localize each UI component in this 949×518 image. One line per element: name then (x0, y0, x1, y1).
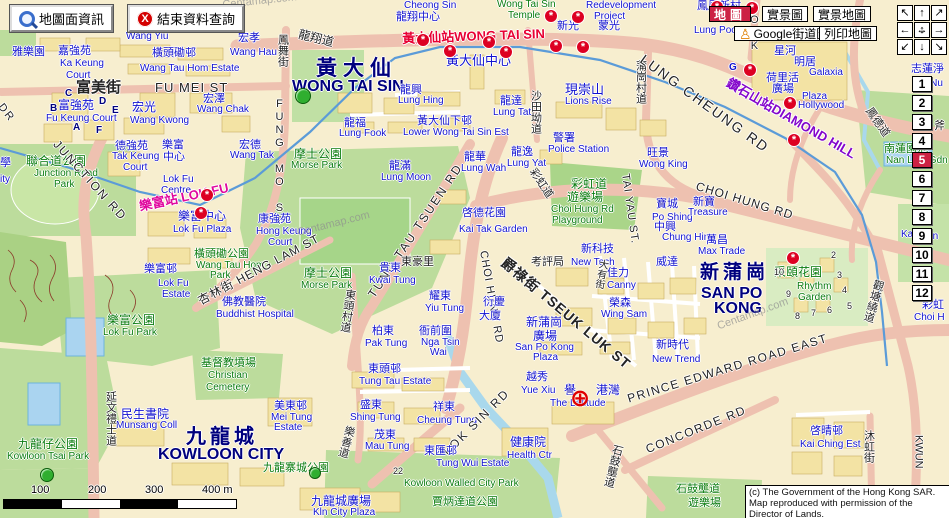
map-label: 2 (831, 251, 836, 260)
map-label: 祥東 (433, 402, 455, 413)
map-label: Lung Tat (493, 108, 531, 118)
map-label: 3 (837, 271, 842, 280)
scale-tick-label: 100 (31, 484, 49, 496)
magnifier-icon (19, 11, 35, 27)
map-label: Estate (162, 290, 190, 300)
pan-↗-button[interactable]: ↗ (931, 5, 947, 21)
map-label: 龍翔中心 (396, 12, 440, 23)
pegman-icon: ♙ (739, 28, 752, 40)
zoom-level-9-button[interactable]: 9 (912, 228, 932, 244)
map-label: Shing Tung (350, 413, 401, 423)
center-pan-icon: ↕ (915, 23, 929, 36)
map-label: 衍慶 (483, 297, 505, 308)
mtr-station-icon: * (195, 207, 207, 219)
map-label: 彩虹道 (571, 178, 607, 190)
map-label: 新蒲崗 (700, 263, 769, 283)
mtr-station-icon: * (201, 189, 213, 201)
map-label: 旺景 (647, 148, 669, 159)
map-label: 廣場 (772, 84, 794, 95)
mtr-station-icon: * (444, 45, 456, 57)
map-label: 橫頭磡公園 (194, 249, 249, 260)
map-label: Tung Wui Estate (436, 459, 509, 469)
zoom-level-5-button[interactable]: 5 (912, 152, 932, 168)
map-label: Wang Tau Hom Estate (140, 64, 240, 74)
map-label: KWUN (912, 435, 923, 469)
print-map-button[interactable]: 列印地圖 (819, 26, 877, 41)
map-label: 龍逸 (511, 147, 533, 158)
map-label: Yiu Tung (425, 304, 464, 314)
mtr-station-icon: * (577, 41, 589, 53)
mtr-station-icon: * (744, 64, 756, 76)
map-label: 樂富 (162, 140, 184, 151)
map-label: Wang Chak (197, 105, 249, 115)
pan-↘-button[interactable]: ↘ (931, 39, 947, 55)
map-label: Health Ctr (507, 451, 552, 461)
map-label: 黃大仙下邨 (417, 116, 472, 127)
map-label: 東豪里 (401, 257, 434, 268)
map-label: 龍華 (464, 152, 486, 163)
map-label: Wong King (639, 160, 688, 170)
map-label: Lok Fu Plaza (173, 225, 231, 235)
map-label: Lung Yat (507, 159, 546, 169)
map-label: 遊樂場 (688, 498, 721, 509)
map-label: Kowloon Walled City Park (404, 479, 519, 489)
map-label: G (729, 63, 737, 73)
map-label: 賈炳達道公園 (432, 497, 498, 508)
facility-dot-icon (295, 88, 311, 104)
map-label: 鳳舞街 (276, 34, 287, 67)
zoom-level-1-button[interactable]: 1 (912, 76, 932, 92)
zoom-level-7-button[interactable]: 7 (912, 190, 932, 206)
map-label: 耀東 (429, 291, 451, 302)
map-label: Wong Tai Sin (497, 0, 556, 10)
map-label: 健康院 (510, 436, 546, 448)
map-label: 新時代 (656, 340, 689, 351)
map-label: Buddhist Hospital (216, 310, 294, 320)
map-label: Lung Fook (339, 129, 386, 139)
map-label: 摩士公園 (304, 267, 352, 279)
map-label: Ka Keung (60, 59, 104, 69)
map-label: Lung Wah (461, 164, 506, 174)
map-label: Plaza (533, 353, 558, 363)
map-mode-button[interactable]: 地圖 (709, 6, 751, 22)
mtr-station-icon: * (550, 40, 562, 52)
zoom-level-11-button[interactable]: 11 (912, 266, 932, 282)
map-label: 星河 (774, 46, 796, 57)
map-label: 衙前圍 (419, 326, 452, 337)
map-label: 沐虹街 (862, 430, 873, 463)
map-label: 富美街 (76, 80, 121, 96)
map-info-label: 地圖面資訊 (39, 9, 104, 28)
map-label: Canny (607, 281, 636, 291)
map-label: Garden (798, 293, 831, 303)
map-label: Estate (274, 423, 302, 433)
map-label: Rhythm (797, 282, 831, 292)
map-label: 延文禮士道 (104, 391, 115, 446)
scale-tick-label: 300 (145, 484, 163, 496)
mtr-station-icon: * (572, 11, 584, 23)
map-label: 考評局 (531, 257, 564, 268)
map-label: 東頭邨 (368, 364, 401, 375)
map-label: 寶城 (656, 199, 678, 210)
map-label: Morse Park (291, 161, 342, 171)
pan-↖-button[interactable]: ↖ (897, 5, 913, 21)
map-label: Wang Tak (230, 151, 274, 161)
map-label: Pak Tung (365, 339, 407, 349)
map-label: A (73, 123, 80, 133)
map-label: New Trend (652, 355, 700, 365)
copyright-notice: (c) The Government of the Hong Kong SAR.… (745, 485, 949, 518)
map-label: 大廈 (479, 311, 501, 322)
map-label: 石鼓壟道 (676, 484, 720, 495)
map-label: 九龍城 (186, 427, 258, 448)
pan-←-button[interactable]: ← (897, 22, 913, 38)
map-label: 新科技 (581, 244, 614, 255)
map-label: 佛教醫院 (222, 297, 266, 308)
map-label: Lower Wong Tai Sin Est (403, 128, 509, 138)
map-label: Max Trade (698, 247, 745, 257)
map-label: 6 (827, 306, 832, 315)
map-label: 基督教墳場 (201, 358, 256, 369)
map-label: 茂東 (374, 430, 396, 441)
map-label: Cheong Sin (404, 1, 456, 11)
mtr-station-icon: * (483, 36, 495, 48)
mtr-station-icon: * (788, 134, 800, 146)
map-label: ity (0, 175, 10, 185)
map-label: 黃大仙 (316, 58, 397, 80)
map-label: 貴東 (379, 263, 401, 274)
zoom-level-10-button[interactable]: 10 (912, 247, 932, 263)
map-label: 學 (0, 158, 11, 169)
map-label: Temple (508, 11, 540, 21)
map-label: Court (123, 163, 147, 173)
map-label: 宏光 (132, 101, 156, 113)
map-label: Lung Hing (398, 96, 444, 106)
zoom-level-2-button[interactable]: 2 (912, 95, 932, 111)
map-label: Lung Moon (381, 173, 431, 183)
map-label: Lions Rise (565, 97, 612, 107)
map-label: 雅樂園 (12, 47, 45, 58)
google-street-label: Google街道圖 (754, 25, 829, 42)
map-label: Police Station (548, 145, 609, 155)
map-label: 柏東 (372, 326, 394, 337)
map-label: 摩士公園 (294, 148, 342, 160)
map-label: 龍達 (500, 96, 522, 107)
map-label: 警署 (553, 133, 575, 144)
selected-location-marker: ⊕ (570, 384, 590, 413)
map-label: 東匯邨 (424, 446, 457, 457)
map-label: 盛東 (360, 400, 382, 411)
map-label: Tung Tau Estate (359, 377, 431, 387)
map-label: Redevelopment (586, 1, 656, 11)
map-label: Tak Keung (112, 152, 159, 162)
zoom-level-6-button[interactable]: 6 (912, 171, 932, 187)
map-label: 廣場 (533, 330, 557, 342)
map-label: 啓晴邨 (810, 426, 843, 437)
map-label: D (99, 97, 106, 107)
pan-center-button[interactable]: ↔↕ (914, 22, 930, 38)
map-label: Lok Fu (163, 175, 194, 185)
map-label: 樂富邨 (144, 264, 177, 275)
pan-↓-button[interactable]: ↓ (914, 39, 930, 55)
map-label: 萬昌 (706, 235, 728, 246)
map-label: F (96, 126, 102, 136)
map-label: Kai Tak Garden (459, 225, 528, 235)
zoom-level-4-button[interactable]: 4 (912, 133, 932, 149)
map-label: 宏孝 (238, 33, 260, 44)
map-label: Playground (552, 216, 603, 226)
map-label: Morse Park (301, 281, 352, 291)
zoom-level-8-button[interactable]: 8 (912, 209, 932, 225)
map-label: Wing Sam (601, 310, 647, 320)
map-label: 九龍仔公園 (18, 438, 78, 450)
map-label: 威達 (656, 257, 678, 268)
map-label: 民生書院 (121, 408, 169, 420)
map-label: 嘉強苑 (58, 46, 91, 57)
mtr-station-icon: * (417, 34, 429, 46)
map-label: 龍滿 (389, 161, 411, 172)
mtr-station-icon: * (784, 97, 796, 109)
map-label: FUNG MO ST (273, 98, 284, 228)
map-app-window: Cheong Sin龍翔中心Wong Tai SinTempleRedevelo… (0, 0, 949, 518)
map-label: Cemetery (206, 383, 249, 393)
map-label: 7 (811, 309, 816, 318)
map-label: 新蒲崗 (526, 316, 562, 328)
map-label: Treasure (688, 208, 728, 218)
map-label: 斧 (934, 121, 945, 132)
map-label: Wang Hau (230, 48, 277, 58)
zoom-level-12-button[interactable]: 12 (912, 285, 932, 301)
map-label: Mau Tung (365, 442, 409, 452)
map-label: Munsang Coll (116, 421, 177, 431)
map-label: Kowloon Tsai Park (7, 452, 89, 462)
map-label: 九龍城廣場 (311, 495, 371, 507)
map-label: Lok Fu (158, 279, 189, 289)
map-label: 富強苑 (58, 99, 94, 111)
map-label: 沙田坳道 (529, 90, 540, 134)
facility-dot-icon (309, 467, 321, 479)
map-label: 橫頭磡邨 (152, 48, 196, 59)
map-label: 10 (774, 268, 784, 277)
map-label: 樂富公園 (107, 314, 155, 326)
map-label: Hollywood (798, 101, 844, 111)
bird-view-button[interactable]: 實景圖 (762, 6, 808, 22)
map-label: Park (54, 180, 75, 190)
mtr-station-icon: * (545, 10, 557, 22)
map-label: Yue Xiu (521, 386, 555, 396)
close-icon: X (137, 11, 153, 27)
pan-→-button[interactable]: → (931, 22, 947, 38)
map-label: Kai Ching Est (800, 440, 861, 450)
scale-bar: 100200300400 m (3, 484, 243, 512)
map-label: Kwai Tung (369, 276, 416, 286)
map-label: Fu Keung Court (46, 114, 117, 124)
map-label: 現崇山 (565, 83, 604, 97)
map-label: 越秀 (526, 372, 548, 383)
map-label: Wang Yiu (126, 32, 168, 42)
scale-tick-label: 400 m (202, 484, 233, 496)
map-label: 蒙光 (598, 21, 620, 32)
map-label: Kln City Plaza (313, 508, 375, 518)
map-label: 港灣 (596, 384, 620, 396)
map-label: 8 (795, 312, 800, 321)
map-label: Wai (430, 348, 447, 358)
map-label: 遊樂場 (567, 191, 603, 203)
map-label: 5 (847, 302, 852, 311)
map-label: Choi Hung Rd (551, 205, 614, 215)
scale-tick-label: 200 (88, 484, 106, 496)
map-label: 榮森 (609, 298, 631, 309)
map-label: 美東邨 (274, 401, 307, 412)
map-label: Choi H (914, 313, 945, 323)
map-label: Lok Fu Park (103, 328, 157, 338)
map-label: Christian (208, 371, 247, 381)
facility-dot-icon (40, 468, 54, 482)
mtr-station-icon: * (500, 46, 512, 58)
map-label: 志蓮淨 (911, 64, 944, 75)
pan-↙-button[interactable]: ↙ (897, 39, 913, 55)
mtr-station-icon: * (787, 252, 799, 264)
map-label: 中心 (163, 152, 185, 163)
end-query-label: 結束資料查詢 (157, 9, 235, 28)
scale-bar-segments (3, 499, 237, 509)
bird-map-button[interactable]: 實景地圖 (813, 6, 871, 22)
zoom-level-3-button[interactable]: 3 (912, 114, 932, 130)
map-label: 佳力 (607, 268, 629, 279)
pan-↑-button[interactable]: ↑ (914, 5, 930, 21)
map-label: 4 (842, 286, 847, 295)
map-label: 啓德花園 (462, 208, 506, 219)
map-label: 康強苑 (258, 214, 291, 225)
map-label: 22 (393, 467, 403, 476)
map-info-button[interactable]: 地圖面資訊 (10, 5, 113, 32)
end-query-button[interactable]: X 結束資料查詢 (128, 5, 244, 32)
map-label: Wang Kwong (130, 116, 189, 126)
map-label: Galaxia (809, 68, 843, 78)
map-label: 彩虹 (922, 300, 944, 311)
